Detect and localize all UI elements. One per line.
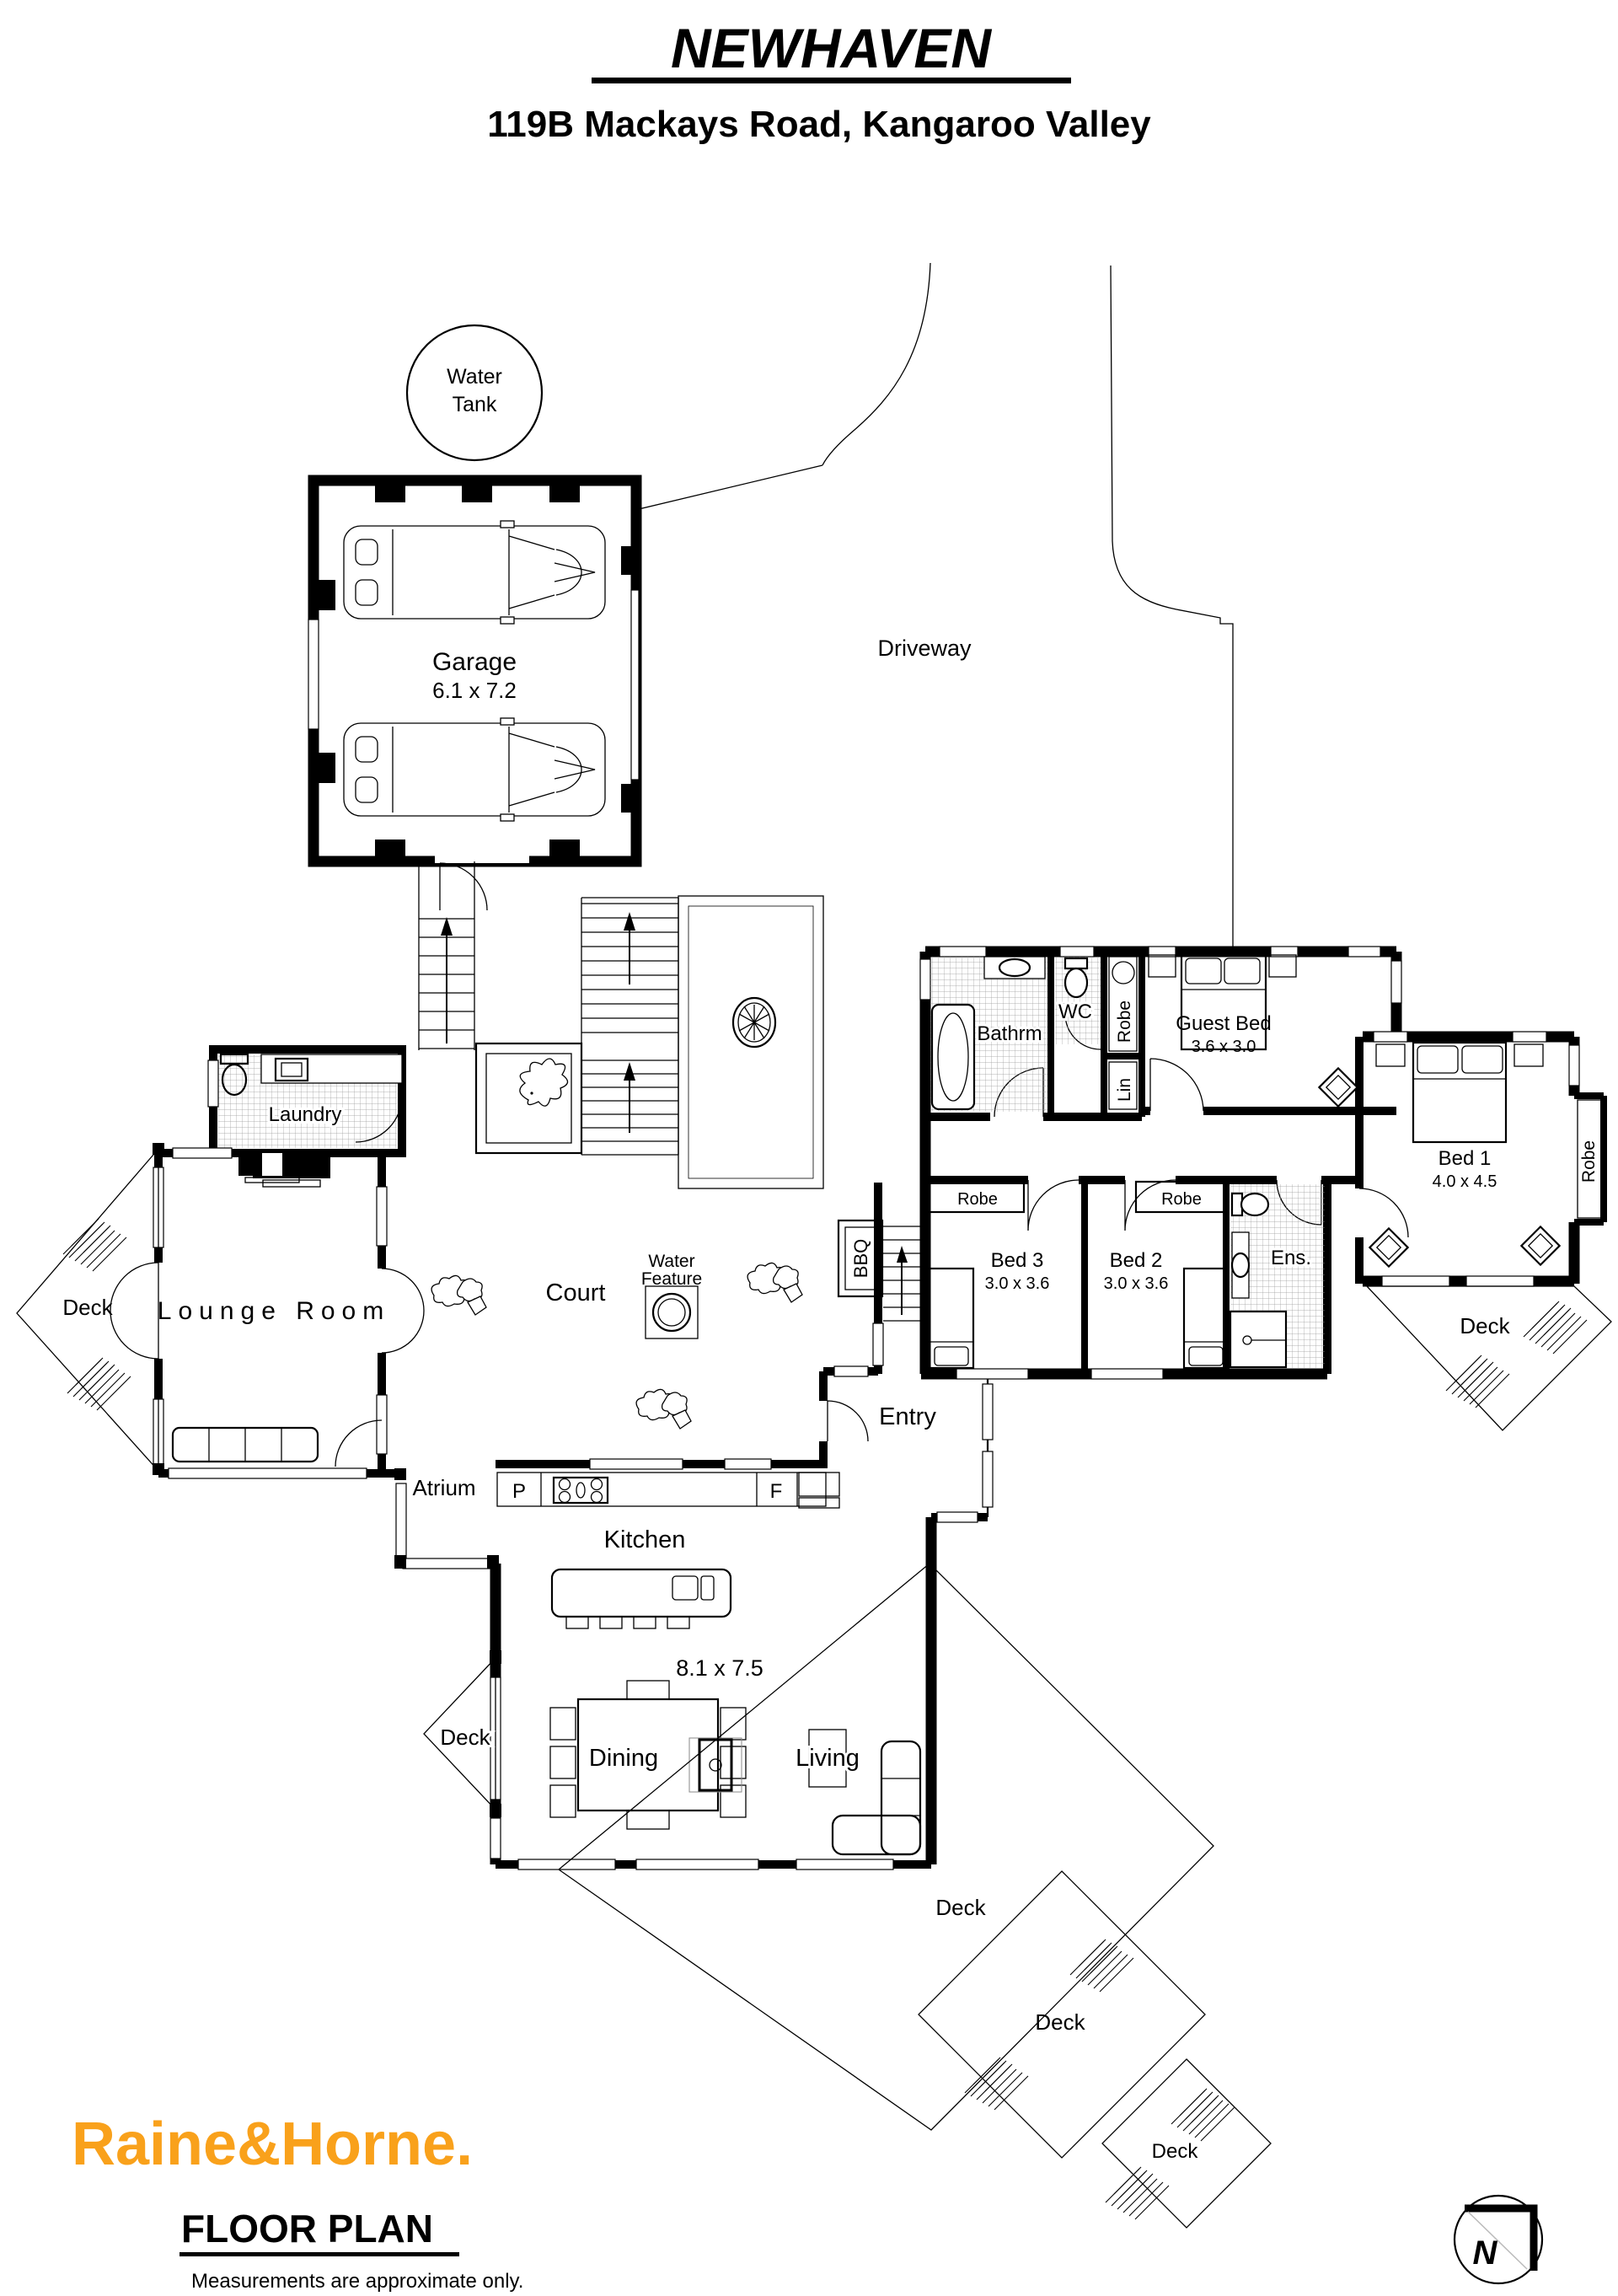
kitchen-dims: 8.1 x 7.5 bbox=[676, 1655, 763, 1681]
deck-hatch-icon bbox=[67, 1358, 131, 1410]
cooktop-icon bbox=[554, 1478, 608, 1503]
paved-court bbox=[678, 896, 823, 1188]
water-tank-label-2: Tank bbox=[453, 393, 497, 416]
guest-bed-dims: 3.6 x 3.0 bbox=[1192, 1038, 1256, 1056]
deck-large bbox=[559, 1564, 1213, 2130]
laundry-label: Laundry bbox=[269, 1103, 342, 1126]
deck-hatch-icon bbox=[1446, 1355, 1509, 1408]
deck-hatch-icon bbox=[1524, 1301, 1587, 1354]
bed2-dims: 3.0 x 3.6 bbox=[1104, 1274, 1169, 1293]
bed1-robe: Robe bbox=[1578, 1100, 1601, 1218]
disclaimer: Measurements are approximate only. bbox=[191, 2270, 523, 2293]
atrium-label: Atrium bbox=[412, 1475, 475, 1500]
guest-bedroom: Guest Bed 3.6 x 3.0 bbox=[1149, 955, 1358, 1107]
ensuite-label: Ens. bbox=[1271, 1247, 1311, 1269]
garage: Garage 6.1 x 7.2 bbox=[308, 480, 639, 910]
bathtub-icon bbox=[932, 1005, 974, 1109]
rocks-icon bbox=[636, 1389, 691, 1429]
deck-dining: Deck bbox=[424, 1650, 501, 1817]
dining: Dining bbox=[550, 1681, 746, 1829]
bedroom-3: Robe Bed 3 3.0 x 3.6 bbox=[930, 1182, 1049, 1368]
floor-plan-title: FLOOR PLAN bbox=[181, 2207, 433, 2250]
shower-icon bbox=[1230, 1312, 1286, 1367]
ensuite: Ens. bbox=[1230, 1184, 1325, 1368]
toilet-icon bbox=[1065, 958, 1087, 997]
deck-label: Deck bbox=[1460, 1313, 1510, 1338]
vanity-basin-icon bbox=[984, 957, 1045, 979]
deck-hatch-icon bbox=[1070, 1939, 1133, 1992]
chair-icon bbox=[1521, 1226, 1559, 1264]
deck-hatch-icon bbox=[1106, 2167, 1169, 2219]
guest-bed-label: Guest Bed bbox=[1176, 1012, 1271, 1035]
island-bench bbox=[552, 1569, 731, 1628]
car-icon bbox=[344, 521, 605, 624]
deck-bedroom: Deck bbox=[1367, 1286, 1611, 1430]
kitchen: P F Kitchen 8.1 x 7.5 bbox=[497, 1473, 839, 1681]
dining-label: Dining bbox=[589, 1745, 658, 1772]
stair-up-arrow-icon bbox=[441, 917, 453, 936]
title-underline bbox=[592, 78, 1071, 83]
lounge-room: Lounge Room bbox=[110, 1148, 424, 1478]
bedroom-1: Bed 1 4.0 x 4.5 Robe bbox=[1369, 1043, 1601, 1267]
living-label: Living bbox=[796, 1745, 860, 1772]
bed1-label: Bed 1 bbox=[1439, 1147, 1492, 1170]
court-label: Court bbox=[546, 1279, 606, 1306]
robe-label: Robe bbox=[1161, 1190, 1202, 1209]
entry: Entry bbox=[823, 1366, 993, 1522]
stairs-main bbox=[581, 898, 678, 1155]
chair-icon bbox=[1319, 1068, 1357, 1106]
deck-hatch-icon bbox=[965, 2057, 1028, 2110]
compass-n-label: N bbox=[1473, 2234, 1498, 2272]
bed3-label: Bed 3 bbox=[991, 1249, 1044, 1272]
floor-plan-underline bbox=[179, 2252, 459, 2256]
deck-hatch-icon bbox=[63, 1219, 126, 1271]
planter-box bbox=[476, 1043, 581, 1153]
car-icon bbox=[344, 718, 605, 821]
robe-label: Robe bbox=[1579, 1140, 1599, 1183]
north-compass-icon: N bbox=[1455, 2196, 1542, 2283]
chair-icon bbox=[1369, 1228, 1407, 1266]
garage-label: Garage bbox=[432, 648, 517, 676]
deck-label: Deck bbox=[935, 1895, 986, 1920]
wc: WC bbox=[1055, 957, 1101, 1044]
sofa bbox=[173, 1428, 318, 1462]
toilet-icon bbox=[1232, 1194, 1268, 1215]
bathroom-label: Bathrm bbox=[977, 1022, 1042, 1045]
footer: Raine&Horne. FLOOR PLAN Measurements are… bbox=[72, 2111, 1542, 2293]
stairs-left bbox=[419, 861, 474, 1050]
deck-label: Deck bbox=[1035, 2009, 1085, 2035]
stair-up-arrow-icon bbox=[624, 912, 635, 931]
double-bed-icon bbox=[1413, 1043, 1506, 1142]
bbq-label: BBQ bbox=[850, 1239, 871, 1278]
linen-cupboard: Lin bbox=[1109, 1062, 1137, 1109]
bbq-area: BBQ bbox=[838, 1183, 921, 1374]
deck-lower-group: Deck Deck Deck bbox=[559, 1564, 1271, 2228]
raine-and-horne-logo: Raine&Horne. bbox=[72, 2111, 473, 2178]
rocks-icon bbox=[747, 1263, 802, 1302]
water-feature-label-1: Water bbox=[648, 1252, 694, 1271]
atrium: Atrium bbox=[394, 1468, 499, 1569]
vanity-basin-icon bbox=[1232, 1232, 1249, 1298]
bathroom: Bathrm bbox=[930, 957, 1047, 1112]
page-title: NEWHAVEN bbox=[671, 17, 992, 79]
bedroom-2: Robe Bed 2 3.0 x 3.6 bbox=[1104, 1182, 1228, 1368]
single-bed-icon bbox=[1184, 1269, 1228, 1368]
lounge-label: Lounge Room bbox=[158, 1297, 390, 1325]
driveway-label: Driveway bbox=[877, 636, 972, 661]
great-room: P F Kitchen 8.1 x 7.5 bbox=[490, 1459, 931, 1870]
wc-label: WC bbox=[1058, 1000, 1092, 1023]
header: NEWHAVEN 119B Mackays Road, Kangaroo Val… bbox=[487, 17, 1151, 145]
stair-up-arrow-icon bbox=[897, 1246, 908, 1263]
robe-label: Robe bbox=[957, 1190, 998, 1209]
bed3-dims: 3.0 x 3.6 bbox=[985, 1274, 1050, 1293]
bed2-label: Bed 2 bbox=[1110, 1249, 1163, 1272]
double-bed-icon bbox=[1181, 955, 1266, 1049]
driveway: Driveway bbox=[639, 263, 1233, 954]
water-tank: Water Tank bbox=[407, 325, 542, 460]
rocks-icon bbox=[431, 1275, 486, 1315]
water-feature-label-2: Feature bbox=[641, 1269, 702, 1289]
hall-robe: Robe bbox=[1109, 957, 1137, 1051]
stair-up-arrow-icon bbox=[624, 1062, 635, 1081]
bed1-dims: 4.0 x 4.5 bbox=[1433, 1172, 1497, 1191]
water-feature: Water Feature bbox=[641, 1252, 702, 1338]
fridge-label: F bbox=[770, 1480, 783, 1503]
page-address: 119B Mackays Road, Kangaroo Valley bbox=[487, 104, 1151, 145]
garage-dims: 6.1 x 7.2 bbox=[432, 678, 517, 703]
robe-label: Robe bbox=[1115, 1000, 1134, 1043]
pantry-label: P bbox=[512, 1480, 526, 1503]
deck-hatch-icon bbox=[1171, 2089, 1235, 2141]
entry-label: Entry bbox=[879, 1403, 936, 1430]
living: Living bbox=[796, 1730, 920, 1854]
medallion-motif-icon bbox=[733, 998, 775, 1047]
deck-label: Deck bbox=[1152, 2140, 1199, 2163]
garage-window bbox=[308, 620, 319, 729]
floor-plan-page: NEWHAVEN 119B Mackays Road, Kangaroo Val… bbox=[0, 0, 1618, 2296]
water-tank-label-1: Water bbox=[447, 365, 502, 389]
deck-label: Deck bbox=[440, 1725, 490, 1750]
deck-lounge: Deck bbox=[17, 1143, 164, 1475]
court: Court Water Feature bbox=[431, 1252, 802, 1429]
linen-label: Lin bbox=[1115, 1078, 1134, 1102]
deck-label: Deck bbox=[62, 1295, 113, 1320]
floor-plan-svg: NEWHAVEN 119B Mackays Road, Kangaroo Val… bbox=[0, 0, 1618, 2296]
single-bed-icon bbox=[930, 1269, 973, 1368]
kitchen-label: Kitchen bbox=[604, 1526, 686, 1553]
plant-icon bbox=[520, 1059, 568, 1106]
